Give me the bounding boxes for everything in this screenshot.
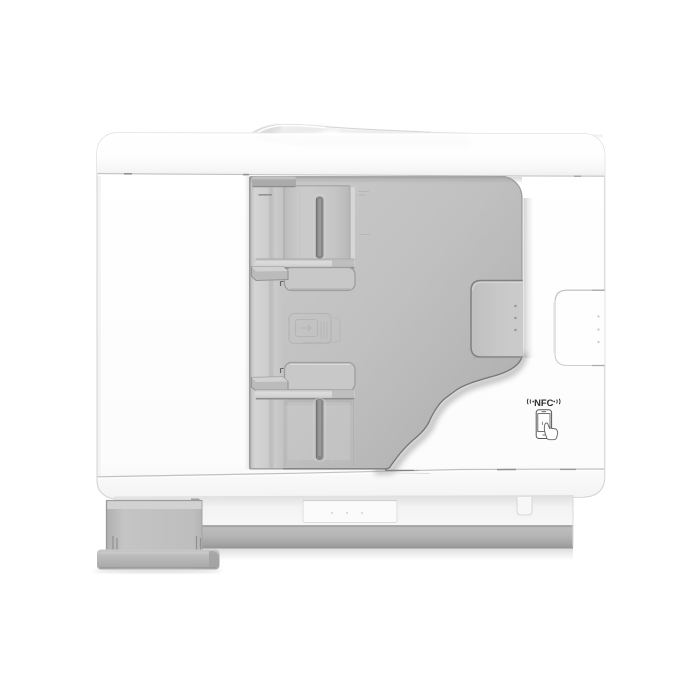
svg-text:NFC: NFC <box>534 397 553 408</box>
